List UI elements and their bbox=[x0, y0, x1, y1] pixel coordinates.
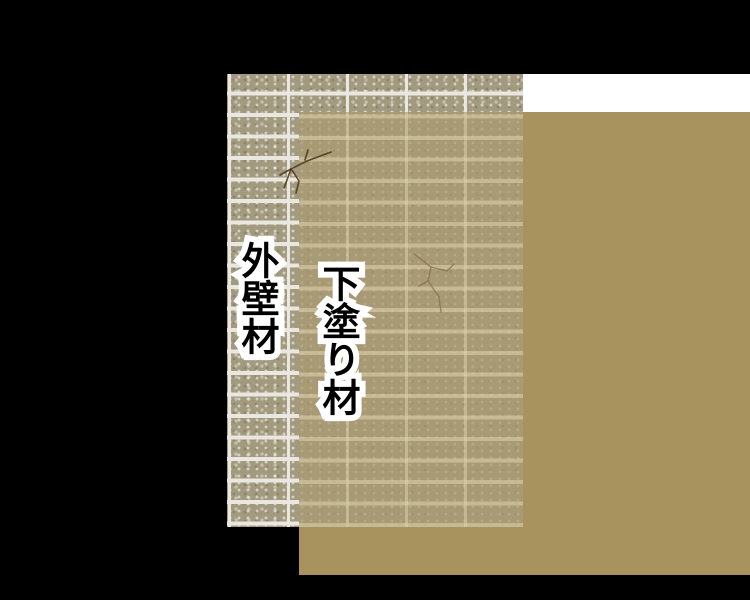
undercoat-label-text: 下塗り材 bbox=[319, 264, 357, 416]
wall-coating-diagram: 外壁材 外壁材 下塗り材 下塗り材 bbox=[0, 0, 750, 600]
exterior-wall-label-text: 外壁材 bbox=[238, 241, 276, 355]
white-backdrop-strip bbox=[523, 74, 750, 112]
undercoat-layer bbox=[299, 112, 750, 575]
